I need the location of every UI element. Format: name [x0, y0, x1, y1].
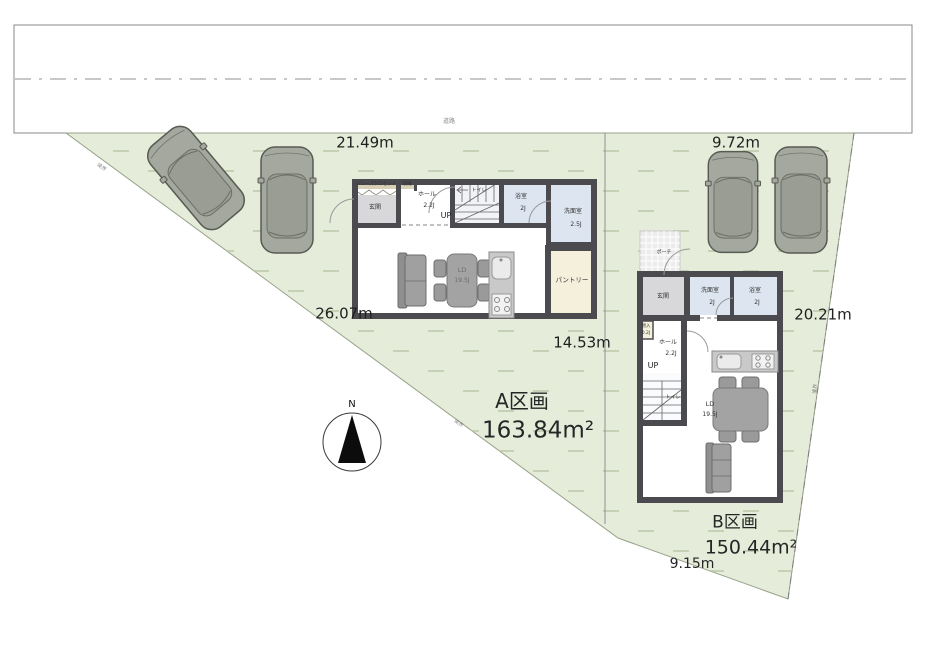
label-b-ld-size: 19.5J	[702, 412, 717, 418]
plot-a-area: 163.84m²	[482, 420, 594, 443]
stove-b	[752, 354, 774, 369]
dimension-a-top: 21.49m	[336, 136, 394, 151]
label-a-shoes-closet: シューズクロゼット	[356, 183, 396, 188]
dining-table-b	[713, 388, 768, 431]
label-a-washroom-size: 2.5J	[570, 222, 581, 228]
bath-b	[734, 277, 777, 315]
dimension-divider: 14.53m	[553, 336, 611, 351]
car-icon	[705, 152, 760, 253]
label-b-porch: ポーチ	[656, 251, 671, 256]
dimension-a-left: 26.07m	[315, 307, 373, 322]
label-b-washroom-size: 2J	[709, 300, 715, 306]
label-a-pantry: パントリー	[556, 277, 589, 284]
label-b-bath: 浴室	[749, 288, 761, 294]
floor-plan-a	[330, 179, 597, 319]
road	[14, 25, 912, 133]
site-plan-canvas	[0, 0, 926, 661]
label-b-up: UP	[648, 362, 659, 370]
label-a-hall: ホール	[418, 192, 436, 198]
north-compass-icon	[323, 413, 381, 471]
stove-a	[492, 294, 511, 315]
label-a-ld: LD	[458, 267, 467, 274]
compass-north-label: N	[348, 400, 355, 410]
dimension-b-bottom: 9.15m	[670, 557, 715, 571]
car-icon	[258, 147, 316, 253]
label-a-hall-size: 2.2J	[423, 203, 434, 209]
label-b-closet-size: 0.2J	[642, 332, 650, 337]
label-b-closet: 物入	[642, 325, 651, 330]
dimension-b-right: 20.21m	[794, 308, 852, 323]
plot-a-name: A区画	[495, 391, 549, 411]
road-label: 道路	[443, 119, 455, 125]
label-b-hall-size: 2.2J	[665, 351, 676, 357]
car-icon	[772, 147, 830, 253]
label-a-storage: 収納	[403, 183, 412, 188]
label-b-entrance: 玄関	[657, 294, 669, 300]
label-a-ld-size: 19.5J	[454, 278, 469, 284]
label-a-bath: 浴室	[515, 194, 527, 200]
label-b-ld: LD	[706, 401, 715, 408]
label-b-bath-size: 2J	[754, 300, 760, 306]
label-a-up: UP	[441, 212, 452, 220]
washroom-b	[690, 277, 731, 315]
label-a-entrance: 玄関	[369, 205, 381, 211]
label-a-toilet: トイレ	[471, 189, 486, 194]
plot-b-name: B区画	[712, 515, 758, 532]
label-b-hall: ホール	[659, 340, 677, 346]
label-a-bath-size: 2J	[520, 206, 526, 212]
label-a-washroom: 洗面室	[564, 209, 582, 215]
site-plan-page: 道路 21.49m 9.72m 26.07m 14.53m 20.21m 9.1…	[0, 0, 926, 661]
label-b-toilet: トイレ	[665, 396, 680, 401]
label-b-washroom: 洗面室	[701, 288, 719, 294]
dimension-b-top: 9.72m	[712, 136, 760, 151]
plot-b-area: 150.44m²	[705, 539, 798, 558]
floor-plan-b	[637, 231, 783, 503]
